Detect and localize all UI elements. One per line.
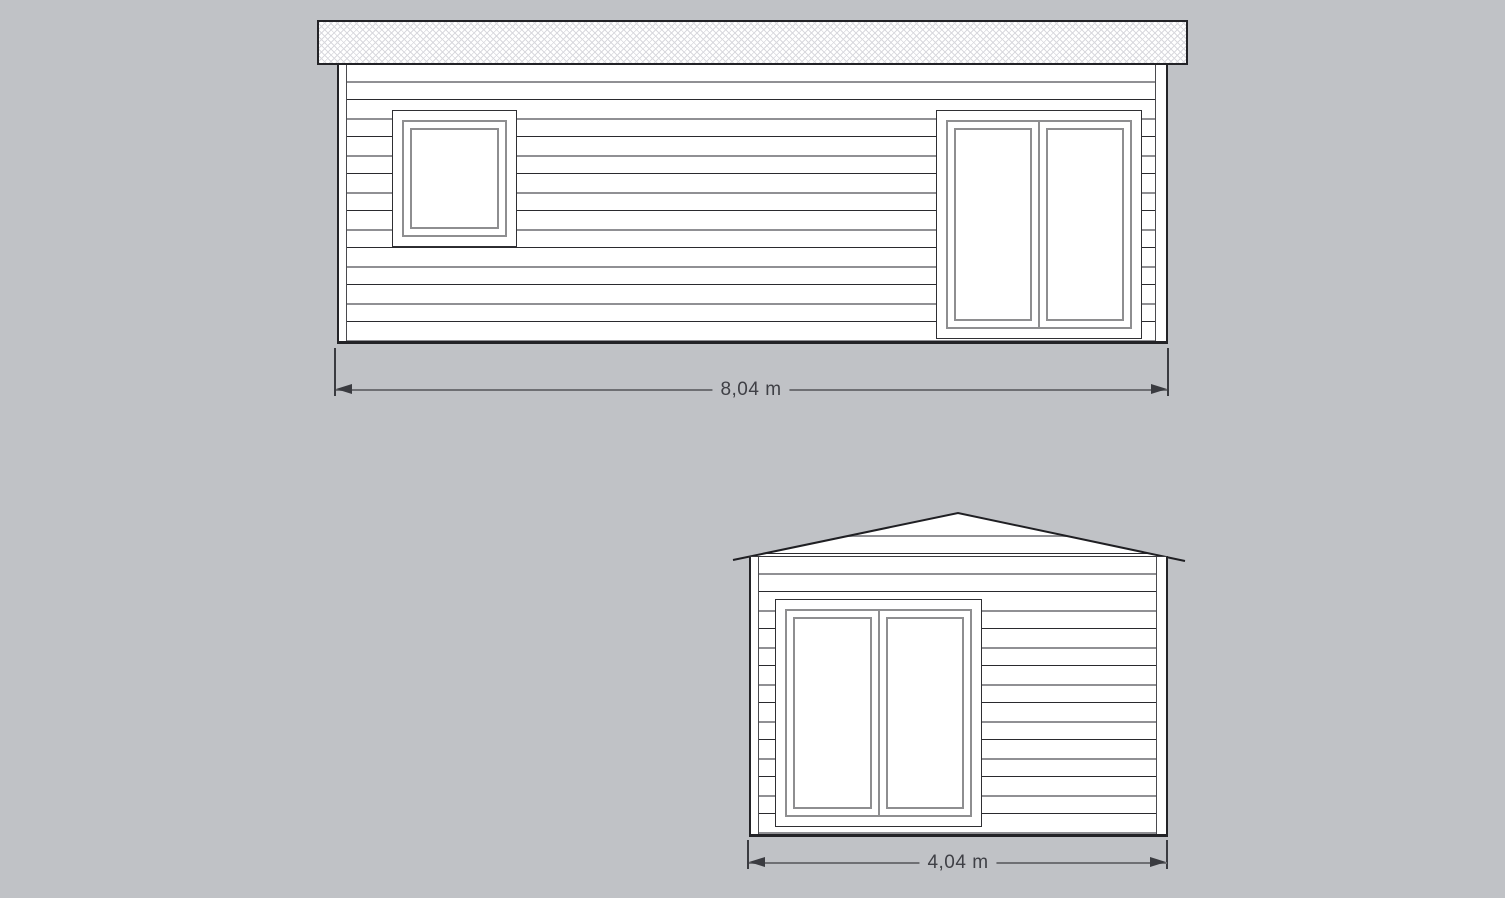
side-wall-siding (337, 65, 1168, 344)
gable-door-left-leaf (787, 611, 878, 815)
corner-trim-right (1156, 557, 1166, 834)
side-door-right-pane (1046, 128, 1124, 321)
corner-trim-right (1155, 65, 1166, 341)
side-door-frame (946, 120, 1132, 329)
side-door-left-pane (954, 128, 1032, 321)
elevation-drawing-canvas: { "colors": { "background": "#c0c2c6", "… (0, 0, 1505, 898)
dimension-label: 4,04 m (919, 852, 996, 874)
roof-fascia-band (317, 20, 1188, 65)
side-door-right-leaf (1040, 122, 1130, 327)
gable-double-door (775, 599, 982, 827)
dimension-arrow-left-icon (336, 384, 352, 394)
dimension-arrow-left-icon (749, 857, 765, 867)
gable-wall-siding (749, 556, 1168, 837)
dimension-arrow-right-icon (1150, 857, 1166, 867)
side-door-left-leaf (948, 122, 1038, 327)
corner-trim-left (339, 65, 347, 341)
side-elevation: 8,04 m (0, 0, 1505, 430)
corner-trim-left (751, 557, 759, 834)
gable-elevation: 4,04 m (0, 460, 1505, 898)
gable-door-right-pane (886, 617, 965, 809)
dimension-arrow-right-icon (1151, 384, 1167, 394)
extension-line-right (1167, 348, 1169, 396)
side-double-door (936, 110, 1142, 339)
gable-door-left-pane (793, 617, 872, 809)
side-window (392, 110, 517, 247)
gable-door-frame (785, 609, 972, 817)
side-window-pane (410, 128, 499, 229)
extension-line-right (1166, 840, 1168, 869)
dimension-label: 8,04 m (712, 379, 789, 401)
gable-door-right-leaf (880, 611, 971, 815)
side-window-frame (402, 120, 507, 237)
